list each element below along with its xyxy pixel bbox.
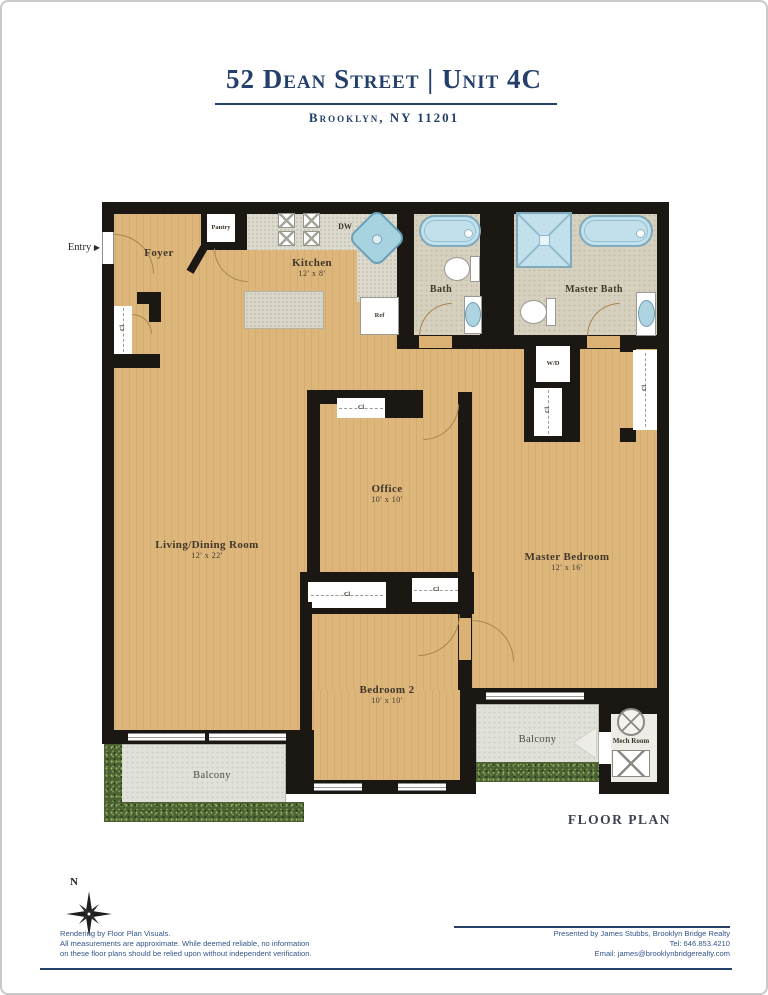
room-label-master-bath: Master Bath xyxy=(540,284,648,296)
shower-drain-icon xyxy=(539,235,550,246)
window xyxy=(398,783,446,791)
window xyxy=(128,733,205,741)
entry-arrow-icon: ▶ xyxy=(94,243,100,252)
room-label-mech: Mech Room xyxy=(600,737,662,745)
entry-label: Entry ▶ xyxy=(52,242,100,253)
master-bath-door-opening xyxy=(587,336,620,348)
tub-drain-icon xyxy=(464,229,473,238)
sink-drain-icon xyxy=(370,232,384,246)
stove-burner-icon xyxy=(303,231,320,246)
footer-line: Tel: 646.853.4210 xyxy=(430,939,730,949)
window-mullion xyxy=(398,787,446,788)
greenery-bottom-left xyxy=(104,802,304,822)
wall xyxy=(599,702,611,732)
room-label-office: Office10' x 10' xyxy=(337,483,437,505)
footer-rule-right xyxy=(454,926,730,928)
mech-fan-icon xyxy=(617,708,645,736)
wall xyxy=(114,354,160,368)
balcony-left-door xyxy=(209,733,286,741)
page-subtitle: Brooklyn, NY 11201 xyxy=(2,110,766,126)
foyer-closet-label: Cl xyxy=(119,319,127,337)
toilet-tank-icon xyxy=(470,256,480,282)
tub-drain-icon xyxy=(636,229,645,238)
toilet-bowl-icon xyxy=(444,257,470,281)
greenery-left-strip xyxy=(104,744,122,806)
wall xyxy=(307,390,320,574)
master-bedroom-door-opening xyxy=(459,618,471,660)
bath-sink-icon xyxy=(465,302,481,327)
wall xyxy=(385,390,423,418)
kitchen-island xyxy=(244,291,324,329)
footer-line: Rendering by Floor Plan Visuals. xyxy=(60,929,420,939)
wall-shaft xyxy=(480,202,514,349)
footer-line: on these floor plans should be relied up… xyxy=(60,949,420,959)
bath-door-opening xyxy=(419,336,452,348)
toilet-tank-icon xyxy=(546,298,556,326)
window-mullion xyxy=(314,787,362,788)
master-closet-label: Cl xyxy=(641,376,649,400)
wall xyxy=(102,202,114,232)
window-mullion xyxy=(486,696,584,697)
window-mullion xyxy=(209,737,286,738)
window xyxy=(314,783,362,791)
bedroom2-closet-2-label: Cl xyxy=(412,586,460,594)
room-label-bedroom2: Bedroom 210' x 10' xyxy=(332,684,442,706)
page-title: 52 Dean Street | Unit 4C xyxy=(2,64,766,95)
office-closet-label: Cl xyxy=(337,404,385,412)
bedroom2-closet-1-label: Cl xyxy=(308,591,386,599)
wall xyxy=(397,202,414,349)
room-label-living-dining: Living/Dining Room12' x 22' xyxy=(117,539,297,561)
footer-disclaimer: Rendering by Floor Plan Visuals. All mea… xyxy=(60,929,420,959)
stove-burner-icon xyxy=(278,213,295,228)
entry-opening xyxy=(102,232,114,264)
footer-line: All measurements are approximate. While … xyxy=(60,939,420,949)
room-label-balcony-left: Balcony xyxy=(142,770,282,782)
room-label-foyer: Foyer xyxy=(119,247,199,259)
room-label-bath: Bath xyxy=(410,284,472,296)
toilet-bowl-icon xyxy=(520,300,547,324)
wall xyxy=(337,390,385,398)
footer-contact: Presented by James Stubbs, Brooklyn Brid… xyxy=(430,929,730,959)
title-underline xyxy=(215,103,557,105)
stove-burner-icon xyxy=(278,231,295,246)
washer-dryer-label: W/D xyxy=(534,360,572,368)
room-label-balcony-right: Balcony xyxy=(480,734,595,746)
wall xyxy=(460,690,476,794)
mech-equipment-icon xyxy=(612,750,650,777)
master-bathtub-icon xyxy=(579,215,653,247)
footer-rule-bottom xyxy=(40,968,732,970)
floor-plan-caption: FLOOR PLAN xyxy=(557,812,682,828)
hall-closet-label: Cl xyxy=(544,396,552,424)
shower-icon xyxy=(516,212,572,268)
wall xyxy=(599,782,669,794)
floor-plan-page: 52 Dean Street | Unit 4C Brooklyn, NY 11… xyxy=(0,0,768,995)
room-label-master-bedroom: Master Bedroom12' x 16' xyxy=(502,551,632,573)
refrigerator-label: Ref xyxy=(360,312,399,320)
pantry-label: Pantry xyxy=(202,224,240,232)
footer-line: Email: james@brooklynbridgerealty.com xyxy=(430,949,730,959)
room-label-kitchen: Kitchen12' x 8' xyxy=(270,257,354,279)
wall xyxy=(102,202,669,214)
master-sink-icon xyxy=(638,300,655,327)
wall xyxy=(620,428,636,442)
balcony-right-door xyxy=(486,692,584,700)
greenery-bottom-right xyxy=(476,762,599,782)
stove-burner-icon xyxy=(303,213,320,228)
footer-line: Presented by James Stubbs, Brooklyn Brid… xyxy=(430,929,730,939)
wall xyxy=(149,292,161,322)
wall xyxy=(657,202,669,704)
bathtub-icon xyxy=(419,215,481,247)
window-mullion xyxy=(128,737,205,738)
wall xyxy=(102,264,114,744)
